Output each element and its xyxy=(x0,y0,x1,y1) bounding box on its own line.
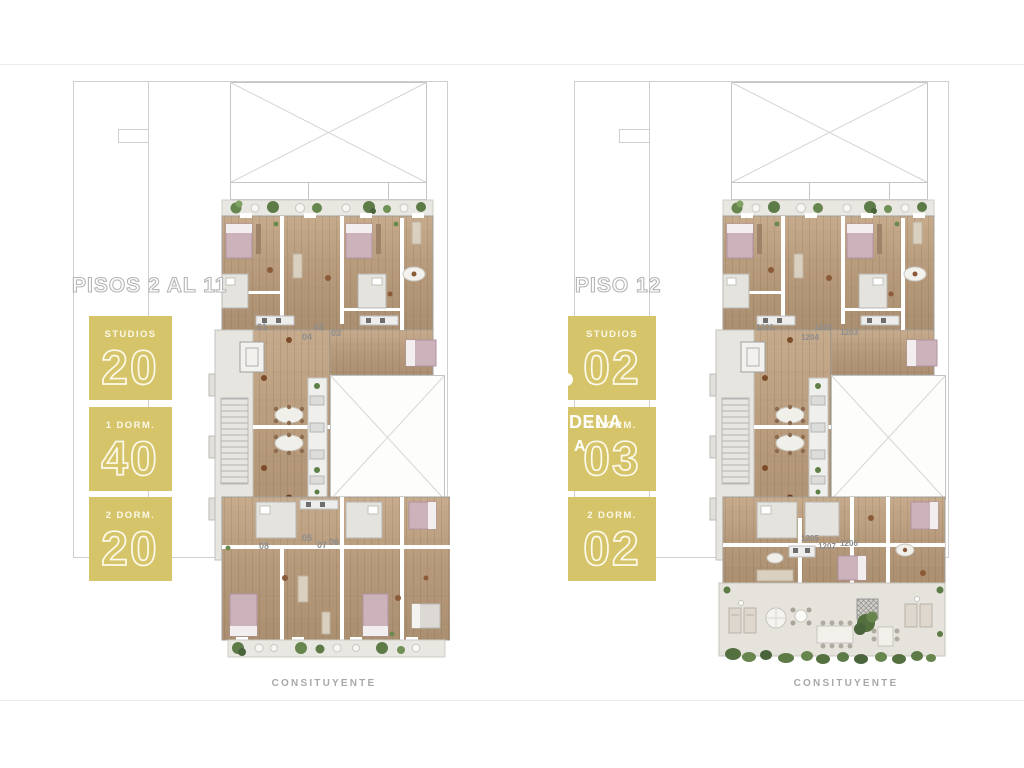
unit-label-1201: 1201 xyxy=(756,323,774,332)
floorplan-sheet: 01 02 03 04 05 08 07 06 xyxy=(0,0,1024,768)
stat-box-left-1dorm: 1 DORM. 40 xyxy=(89,407,172,491)
stat-label: 1 DORM. xyxy=(89,420,172,431)
balcony-bottom-left xyxy=(228,640,445,657)
street-label-left: CONSITUYENTE xyxy=(184,678,464,689)
bottom-band-right xyxy=(723,497,945,583)
stat-box-right-studios: STUDIOS 02 xyxy=(568,316,656,400)
unit-label-07: 07 xyxy=(317,540,327,550)
stat-value: 20 xyxy=(101,523,158,573)
unit-label-08: 08 xyxy=(259,541,269,551)
unit-label-04: 04 xyxy=(302,332,312,342)
stat-label: STUDIOS xyxy=(568,329,656,340)
plan-title-left: PISOS 2 AL 11 xyxy=(72,274,227,297)
stat-value: 02 xyxy=(583,523,640,573)
stat-box-left-studios: STUDIOS 20 xyxy=(89,316,172,400)
unit-label-01: 01 xyxy=(257,322,267,332)
photo-bottom-edge xyxy=(0,700,1024,701)
unit-label-1205: 1205 xyxy=(801,534,819,543)
plan-title-left-svg: PISOS 2 AL 11 xyxy=(72,268,292,300)
unit-label-1203: 1203 xyxy=(840,328,858,337)
stat-value: 40 xyxy=(101,433,158,483)
unit-label-1202: 1202 xyxy=(814,323,832,332)
unit-label-1204: 1204 xyxy=(801,333,819,342)
terrace xyxy=(719,583,945,656)
photo-top-edge xyxy=(0,64,1024,65)
stat-label: STUDIOS xyxy=(89,329,172,340)
unit-label-1206: 1206 xyxy=(840,539,858,548)
stat-box-left-2dorm: 2 DORM. 20 xyxy=(89,497,172,581)
watermark-circle xyxy=(560,373,573,386)
bottom-band-left xyxy=(222,497,450,641)
stat-value: 20 xyxy=(101,342,158,392)
plan-title-right: PISO 12 xyxy=(575,274,661,297)
stat-label: 2 DORM. xyxy=(568,510,656,521)
stat-label: 2 DORM. xyxy=(89,510,172,521)
street-label-right: CONSITUYENTE xyxy=(706,678,986,689)
watermark-text-1: DENA xyxy=(569,412,622,433)
watermark-text-2: A xyxy=(574,438,586,456)
unit-label-03: 03 xyxy=(331,328,341,338)
stat-value: 03 xyxy=(583,433,640,483)
stat-box-right-2dorm: 2 DORM. 02 xyxy=(568,497,656,581)
unit-label-1207: 1207 xyxy=(818,542,836,551)
unit-label-05: 05 xyxy=(302,533,312,543)
unit-label-02: 02 xyxy=(314,322,324,332)
unit-label-06: 06 xyxy=(329,537,339,547)
stat-value: 02 xyxy=(583,342,640,392)
plan-title-right-svg: PISO 12 xyxy=(575,268,735,300)
